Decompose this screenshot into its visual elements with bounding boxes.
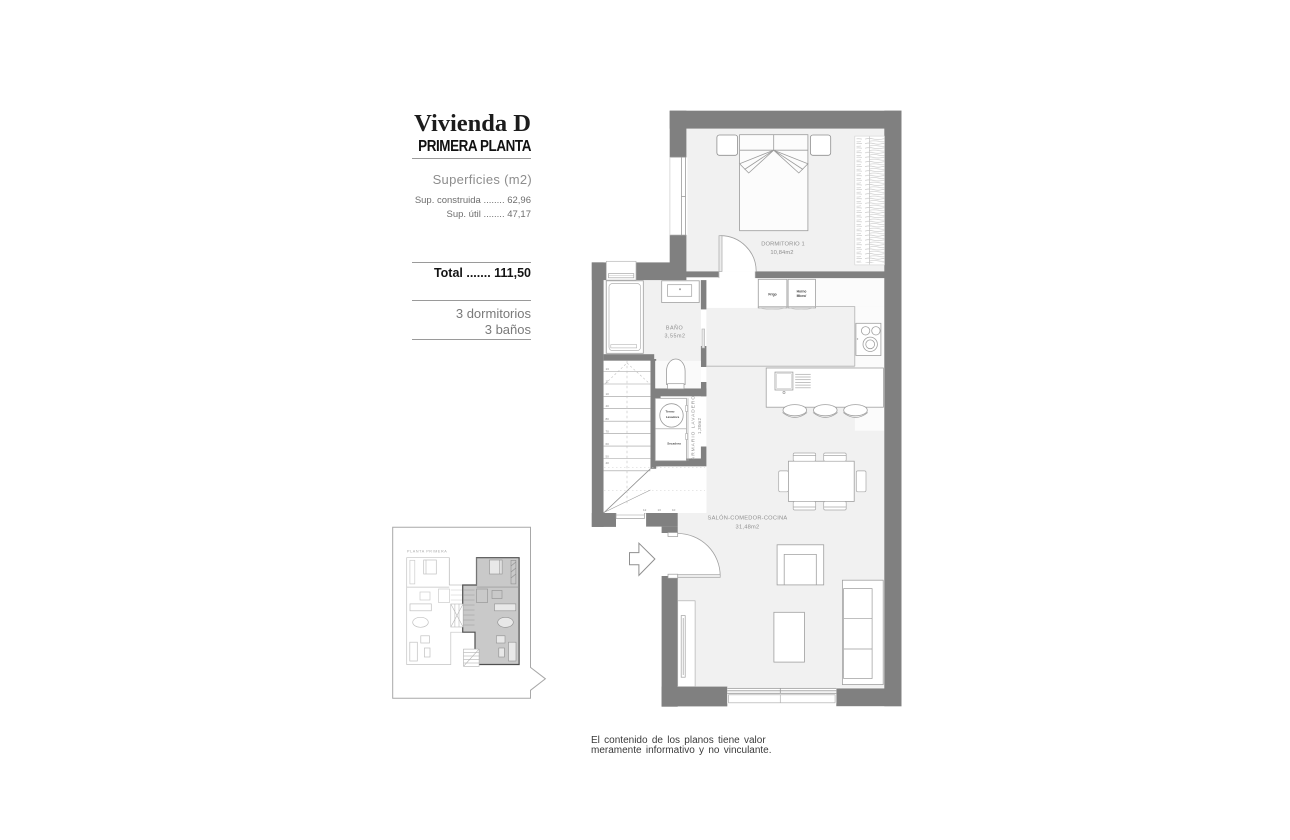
svg-text:10: 10 [672, 508, 676, 512]
svg-text:13: 13 [606, 367, 610, 371]
svg-text:Lavadora: Lavadora [666, 415, 680, 419]
svg-text:Termo: Termo [666, 410, 675, 414]
svg-text:3,55m2: 3,55m2 [665, 334, 686, 340]
svg-text:13: 13 [658, 508, 662, 512]
svg-text:DORMITORIO 1: DORMITORIO 1 [761, 242, 805, 248]
svg-text:12: 12 [643, 508, 647, 512]
svg-text:ARMARIO LAVADERO: ARMARIO LAVADERO [690, 395, 696, 460]
svg-text:40: 40 [606, 404, 610, 408]
svg-text:10,84m2: 10,84m2 [770, 250, 793, 256]
svg-text:70: 70 [606, 430, 610, 434]
svg-text:Micro/: Micro/ [797, 294, 807, 298]
svg-text:BAÑO: BAÑO [666, 325, 683, 332]
svg-text:50: 50 [606, 455, 610, 459]
svg-text:SALÓN-COMEDOR-COCINA: SALÓN-COMEDOR-COCINA [708, 515, 788, 522]
svg-text:Frigo: Frigo [768, 293, 776, 297]
svg-text:1,30m2: 1,30m2 [697, 417, 702, 434]
svg-text:Horno: Horno [797, 290, 807, 294]
svg-text:31,48m2: 31,48m2 [736, 525, 760, 531]
svg-text:80: 80 [606, 417, 610, 421]
svg-text:60: 60 [606, 442, 610, 446]
svg-text:PLANTA PRIMERA: PLANTA PRIMERA [407, 550, 447, 554]
svg-text:10: 10 [606, 392, 610, 396]
svg-text:40: 40 [606, 461, 610, 465]
svg-text:11: 11 [606, 380, 609, 384]
svg-text:Secadora: Secadora [667, 442, 681, 446]
